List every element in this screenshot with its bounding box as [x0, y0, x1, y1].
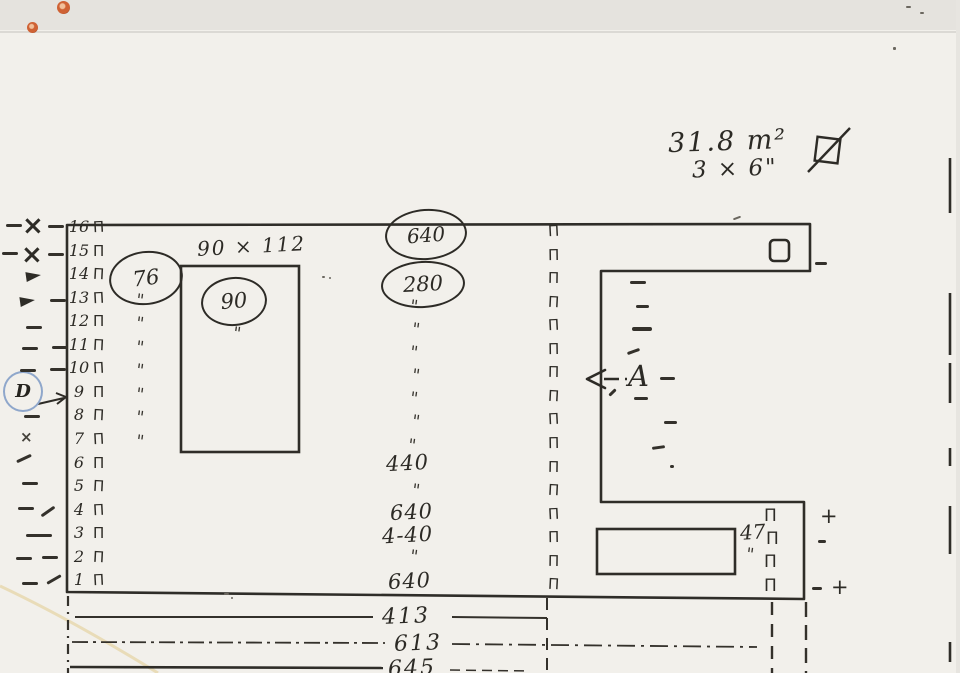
margin-dash-mark — [50, 299, 66, 302]
mid-pillar-symbol: П — [548, 506, 560, 522]
mid-pillar-symbol: П — [548, 318, 560, 334]
row-pillar-symbol: П — [93, 502, 105, 518]
right-pillar-symbol: П — [766, 531, 779, 548]
row-number: 4 — [66, 502, 92, 518]
margin-dash-mark — [18, 507, 34, 510]
mid-pillar-symbol: П — [548, 530, 560, 545]
x-mark-small: × — [20, 430, 33, 445]
row-pillar-symbol: П — [93, 361, 105, 377]
row-number: 16 — [66, 219, 92, 235]
row-number: 10 — [66, 360, 92, 376]
margin-dash-mark — [22, 347, 38, 350]
notch-dash-mark — [670, 465, 674, 468]
row-pillar-symbol: П — [93, 526, 104, 541]
bottom-dimension-label: 613 — [394, 632, 443, 656]
row-pillar-symbol: П — [93, 549, 105, 565]
x-mark: × — [21, 242, 43, 268]
row-pillar-symbol: П — [93, 244, 104, 259]
margin-dash-mark — [22, 582, 38, 585]
mid-pillar-symbol: П — [548, 483, 560, 499]
paper-speck — [906, 6, 911, 8]
blue-circled-mark: D — [3, 371, 43, 412]
row-number: 7 — [66, 431, 92, 447]
right-pillar-symbol: П — [764, 554, 777, 571]
row-pillar-symbol: П — [93, 432, 105, 448]
margin-dash-mark — [24, 415, 40, 418]
size-note: 3 × 6" — [692, 157, 779, 183]
value-label: 640 — [387, 570, 431, 593]
paper-speck — [231, 597, 233, 599]
row-pillar-symbol: П — [93, 385, 104, 400]
paper-speck — [224, 593, 229, 595]
slashed-square-stroke — [808, 128, 850, 172]
row-pillar-symbol: П — [93, 314, 104, 329]
margin-dash-mark — [26, 534, 52, 537]
notch-dash-mark — [664, 421, 677, 424]
mid-pillar-symbol: П — [548, 247, 560, 262]
mid-pillar-symbol: П — [548, 554, 560, 569]
dimension-line-613-right — [452, 644, 757, 647]
dimension-line-613-left — [72, 642, 385, 643]
row-number: 2 — [66, 549, 92, 565]
right-pillar-symbol: П — [764, 508, 777, 525]
row-pillar-symbol: П — [93, 573, 105, 589]
section-label: A — [628, 362, 649, 391]
margin-dash-mark — [16, 557, 32, 560]
value-label: 640 — [389, 501, 433, 524]
value-label: 440 — [385, 452, 429, 475]
value-label: 4-40 — [381, 524, 433, 548]
plus-mark: + — [820, 506, 838, 527]
margin-dash-mark — [48, 253, 64, 256]
mid-pillar-symbol: П — [548, 224, 560, 240]
row-pillar-symbol: П — [93, 337, 105, 353]
x-mark: × — [22, 213, 44, 239]
blue-mark-letter: D — [15, 381, 31, 402]
row-number: 6 — [66, 455, 92, 471]
mid-pillar-symbol: П — [548, 294, 560, 310]
margin-dash-mark — [26, 326, 42, 329]
right-block-value: 47 — [739, 521, 766, 543]
notch-dash-mark — [660, 377, 675, 380]
margin-dash-mark — [6, 224, 22, 227]
right-dash-mark — [815, 262, 827, 265]
paper-speck — [893, 47, 896, 50]
dimension-line-413-right — [452, 617, 547, 618]
area-note: 31.8 m² — [668, 126, 788, 157]
row-pillar-symbol: П — [93, 456, 104, 471]
margin-dash-mark — [50, 368, 66, 371]
dimension-label: 90 × 112 — [197, 233, 307, 259]
right-pillar-symbol: П — [764, 578, 777, 595]
margin-dash-mark — [42, 556, 58, 559]
dimension-line-645-right — [450, 670, 530, 671]
mid-pillar-symbol: П — [548, 577, 560, 593]
paper-speck — [329, 277, 331, 279]
scanned-plan-canvas: 31.8 m² 3 × 6" 90 × 112 A 640 280 76 90 … — [0, 0, 960, 673]
row-pillar-symbol: П — [93, 479, 105, 495]
right-dash-mark — [812, 587, 822, 590]
bottom-dimension-label: 645 — [388, 657, 437, 673]
row-number: 3 — [66, 525, 92, 541]
plan-linework — [0, 0, 960, 673]
margin-dash-mark — [20, 369, 36, 372]
row-number: 15 — [66, 243, 92, 259]
dimension-line-645-left — [70, 667, 383, 668]
paper-crease — [0, 586, 158, 673]
row-pillar-symbol: П — [93, 290, 105, 306]
mid-pillar-symbol: П — [548, 436, 560, 451]
arrow-tick-icon — [19, 295, 35, 307]
margin-dash-mark — [2, 252, 18, 255]
notch-dash-mark — [634, 397, 648, 400]
notch-dash-mark — [636, 305, 649, 308]
row-number: 5 — [66, 478, 92, 494]
small-box-symbol-icon — [770, 240, 789, 261]
arrow-tick-icon — [25, 270, 41, 282]
row-pillar-symbol: П — [93, 408, 105, 424]
row-number: 14 — [66, 266, 92, 282]
row-pillar-symbol: П — [93, 267, 105, 283]
margin-dash-mark — [52, 346, 68, 349]
paper-speck — [322, 276, 325, 278]
bottom-dimension-label: 413 — [382, 605, 431, 629]
row-number: 11 — [66, 337, 92, 353]
mid-pillar-symbol: П — [548, 342, 560, 357]
paper-speck — [920, 12, 924, 14]
row-number: 1 — [66, 572, 92, 588]
margin-dash-mark — [22, 482, 38, 485]
mid-pillar-symbol: П — [548, 389, 560, 405]
mid-pillar-symbol: П — [548, 412, 560, 428]
notch-dash-mark — [632, 327, 652, 331]
notch-dash-mark — [630, 281, 646, 284]
mid-pillar-symbol: П — [548, 459, 560, 474]
mid-pillar-symbol: П — [548, 271, 560, 286]
inner-rectangle-bottom-right — [597, 529, 735, 574]
margin-dash-mark — [48, 225, 64, 228]
row-pillar-symbol: П — [93, 220, 105, 236]
row-number: 12 — [66, 313, 92, 329]
row-number: 8 — [66, 407, 92, 423]
right-dash-mark — [818, 540, 826, 543]
plus-mark: + — [831, 577, 849, 598]
row-number: 9 — [66, 384, 92, 400]
row-number: 13 — [66, 290, 92, 306]
mid-pillar-symbol: П — [548, 365, 560, 380]
